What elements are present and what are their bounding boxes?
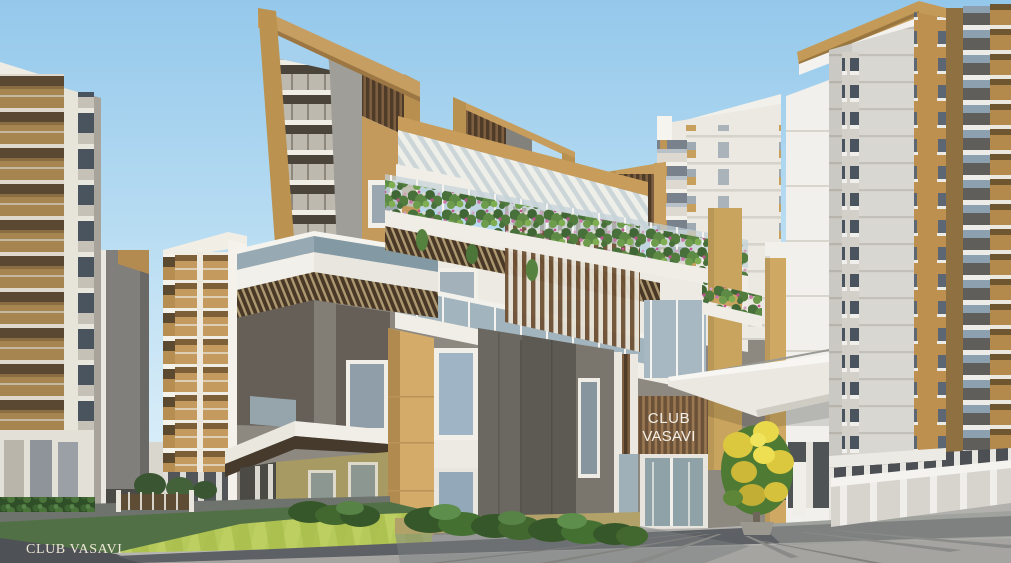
svg-text:CLUB VASAVI: CLUB VASAVI: [26, 542, 122, 557]
svg-text:VASAVI: VASAVI: [642, 428, 695, 445]
svg-text:CLUB: CLUB: [648, 410, 690, 427]
